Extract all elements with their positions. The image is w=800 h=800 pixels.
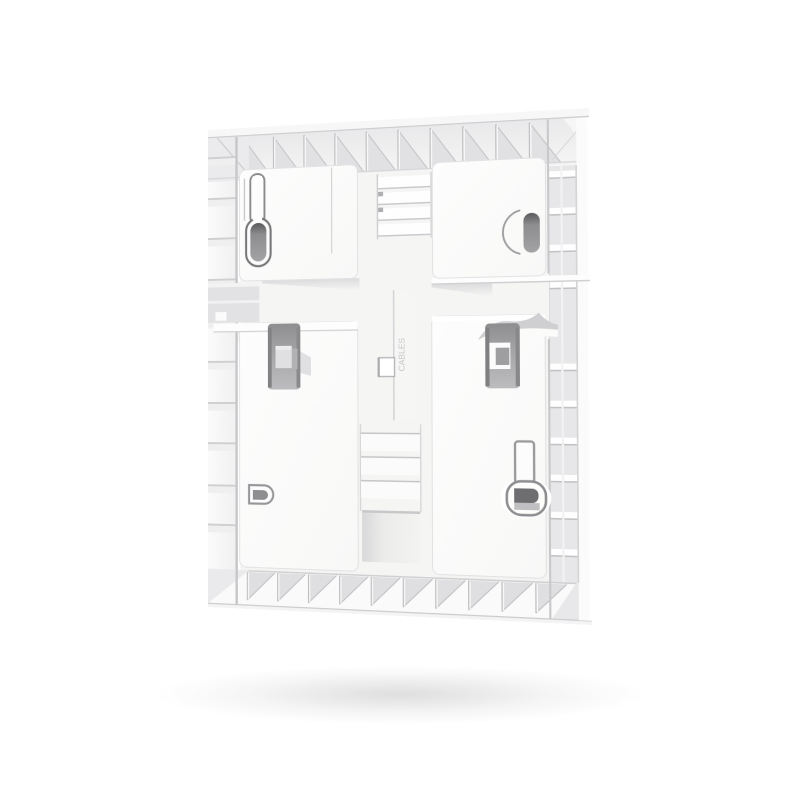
svg-text:CABLES: CABLES: [397, 338, 407, 371]
